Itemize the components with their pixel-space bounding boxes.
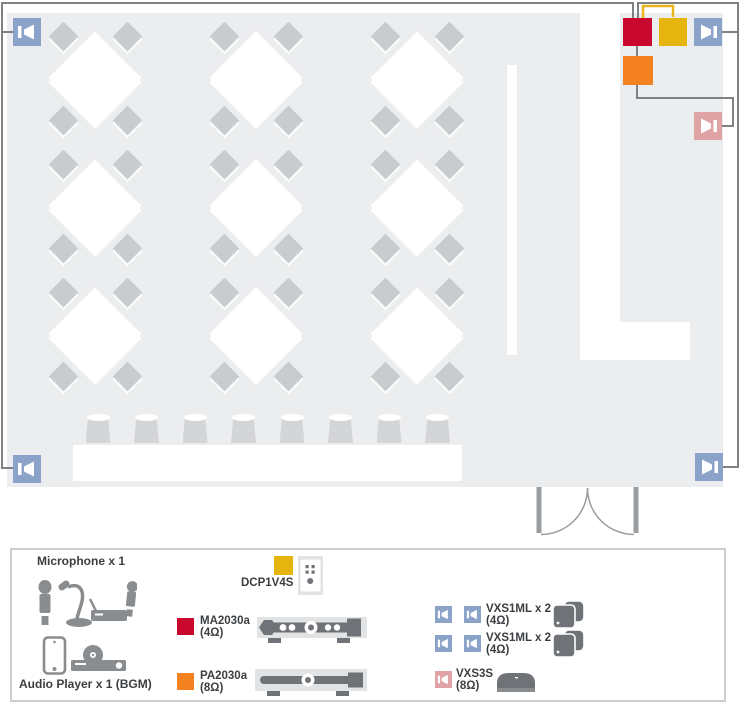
cd-player-icon [69, 644, 129, 672]
ma2030a-label: MA2030a [200, 615, 250, 627]
vxs3s-speaker-icon [435, 671, 452, 688]
speaker-right-facing-icon [15, 20, 39, 44]
dcp1v4s-label: DCP1V4S [241, 577, 293, 589]
vxs3s-product-image [495, 670, 537, 696]
vxs1ml-speaker-icon-1b [464, 606, 481, 623]
vxs1ml-row1-impedance: (4Ω) [486, 615, 509, 627]
pa2030a-marker [177, 673, 194, 690]
pa2030a-impedance: (8Ω) [200, 682, 223, 694]
yamaha-restaurant-audio-diagram: Microphone x 1 Audio Player x 1 (BGM) [0, 0, 740, 704]
vxs1ml-speaker-icon-2b [464, 635, 481, 652]
wall-speaker-top-left [13, 18, 41, 46]
speaker-right-facing-icon [15, 457, 39, 481]
vxs1ml-speaker-icon-2a [435, 635, 452, 652]
gooseneck-mic-icon [57, 579, 92, 627]
vxs1ml-row2-impedance: (4Ω) [486, 644, 509, 656]
vxs1ml-row1-label: VXS1ML x 2 [486, 603, 551, 615]
vxs1ml-product-image [552, 600, 586, 630]
vxs3s-impedance: (8Ω) [456, 680, 479, 692]
wireless-mic-set-icon [90, 581, 137, 621]
ma2030a-marker [177, 618, 194, 635]
microphone-icons [35, 578, 137, 630]
handheld-mic-icon [39, 580, 52, 625]
pa2030a-marker-floor [623, 56, 653, 85]
microphone-label: Microphone x 1 [37, 555, 125, 567]
door-post-right [634, 487, 639, 533]
door-leaf-left-arc [541, 488, 588, 535]
wall-speaker-top-right [694, 18, 722, 46]
ma2030a-amp-icon [257, 617, 367, 644]
wall-speaker-vxs3s [694, 112, 722, 140]
pa2030a-amp-icon [255, 669, 367, 696]
vxs1ml-row2-label: VXS1ML x 2 [486, 632, 551, 644]
vxs1ml-speaker-icon-1a [435, 606, 452, 623]
dcp1v4s-wall-controller-icon [298, 556, 323, 595]
ma2030a-impedance: (4Ω) [200, 627, 223, 639]
vxs1ml-product-image [552, 629, 586, 659]
wall-speaker-bottom-left [13, 455, 41, 483]
ma2030a-marker-floor [623, 18, 652, 46]
pa2030a-label: PA2030a [200, 670, 247, 682]
door-leaf-right-arc [588, 488, 635, 535]
speaker-left-facing-icon [696, 114, 720, 138]
door-post-left [537, 487, 542, 533]
audio-player-label: Audio Player x 1 (BGM) [19, 678, 152, 690]
speaker-left-facing-icon [697, 455, 721, 479]
dcp1v4s-marker [274, 556, 293, 575]
wall-speaker-bottom-right [695, 453, 723, 481]
dcp1v4s-marker-floor [659, 18, 687, 46]
vxs3s-label: VXS3S [456, 668, 493, 680]
smartphone-icon [42, 636, 68, 676]
speaker-left-facing-icon [696, 20, 720, 44]
